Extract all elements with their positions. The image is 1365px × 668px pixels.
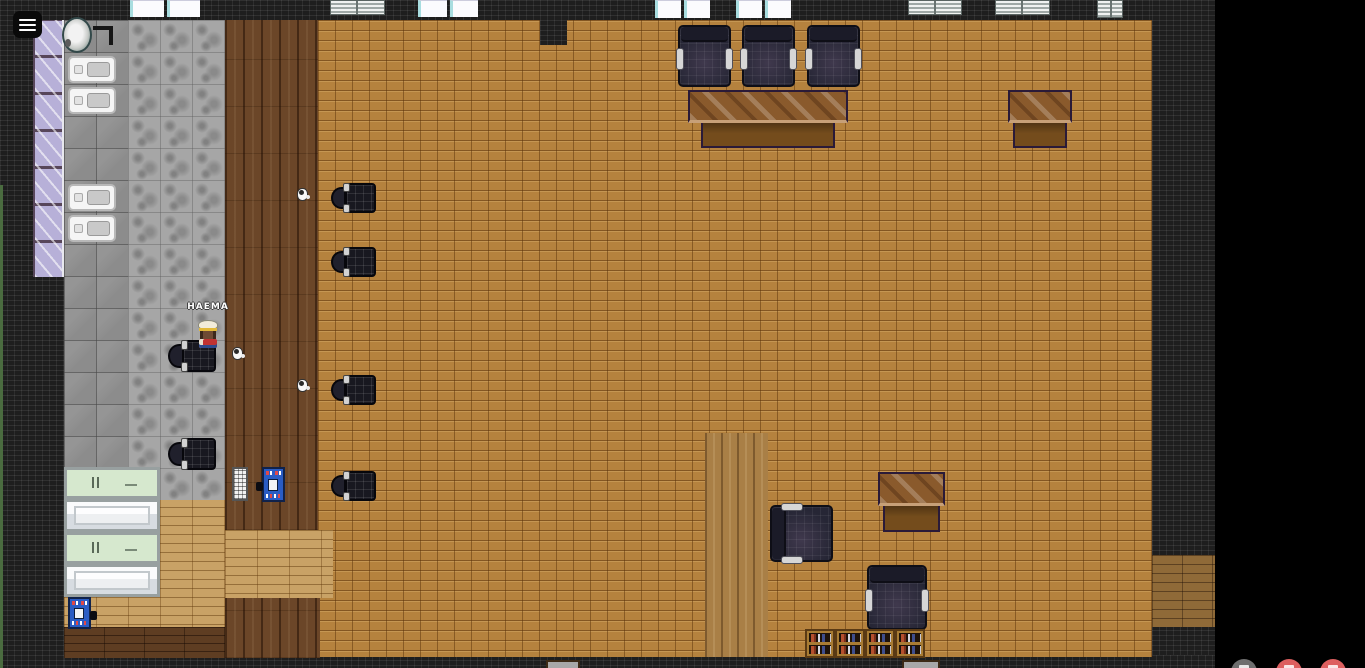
player-character: HAEMA [194, 302, 222, 354]
glass-wall [33, 20, 64, 277]
window-blinds [995, 0, 1050, 15]
doorway-notch [540, 20, 567, 45]
stove [68, 56, 116, 83]
darkwood-block [225, 598, 320, 658]
counter [64, 467, 160, 499]
player-body [199, 339, 217, 348]
window-blinds [908, 0, 962, 15]
office-chair [331, 247, 376, 277]
mug [297, 379, 308, 392]
hamburger-icon [19, 29, 36, 31]
stove [68, 184, 116, 211]
bookshelf [805, 629, 835, 658]
sink [62, 17, 92, 53]
player-name-label: HAEMA [187, 302, 229, 312]
window-blinds [330, 0, 385, 15]
mug [232, 347, 243, 360]
camera-button[interactable] [1320, 659, 1346, 668]
right-doorway-floor [1152, 555, 1215, 627]
window-white [418, 0, 478, 17]
office-chair [331, 375, 376, 405]
desk [1008, 90, 1072, 148]
desk [688, 90, 848, 148]
corner-mark [93, 26, 113, 45]
mic-button[interactable] [1276, 659, 1302, 668]
grass-edge [0, 185, 3, 668]
player-head [200, 331, 216, 339]
menu-button[interactable] [13, 11, 42, 38]
armchair [807, 25, 860, 87]
stove [68, 215, 116, 242]
window-blinds [1097, 0, 1123, 18]
counter [64, 532, 160, 564]
office-chair [331, 183, 376, 213]
wall-top [64, 0, 1152, 20]
armchair [867, 565, 927, 630]
bookshelf [895, 629, 925, 658]
counter [64, 499, 160, 532]
counter [64, 564, 160, 597]
radiator [232, 467, 248, 501]
armchair [678, 25, 731, 87]
window-white [655, 0, 710, 18]
mug [297, 188, 308, 201]
vending-machine [68, 597, 91, 629]
game-viewport[interactable]: HAEMA [0, 0, 1365, 668]
stove [68, 87, 116, 114]
screen-share-button[interactable] [1231, 659, 1257, 668]
vending-machine [262, 467, 285, 502]
window-white [130, 0, 200, 17]
carpet-floor [128, 20, 225, 500]
lightwood-column [705, 433, 768, 657]
bookshelf [835, 629, 865, 658]
player-sprite [197, 320, 219, 352]
window-white [736, 0, 791, 18]
office-chair [168, 438, 216, 470]
cut-desk [902, 660, 940, 668]
darkwood-strip [225, 20, 318, 530]
armchair [742, 25, 795, 87]
dark-plank-floor [64, 627, 225, 658]
hamburger-icon [19, 19, 36, 21]
cut-desk [546, 660, 580, 668]
hamburger-icon [19, 24, 36, 26]
bookshelf [865, 629, 895, 658]
office-chair [331, 471, 376, 501]
kitchen-doorway-floor [225, 530, 333, 598]
armchair [770, 505, 833, 562]
desk [878, 472, 945, 532]
